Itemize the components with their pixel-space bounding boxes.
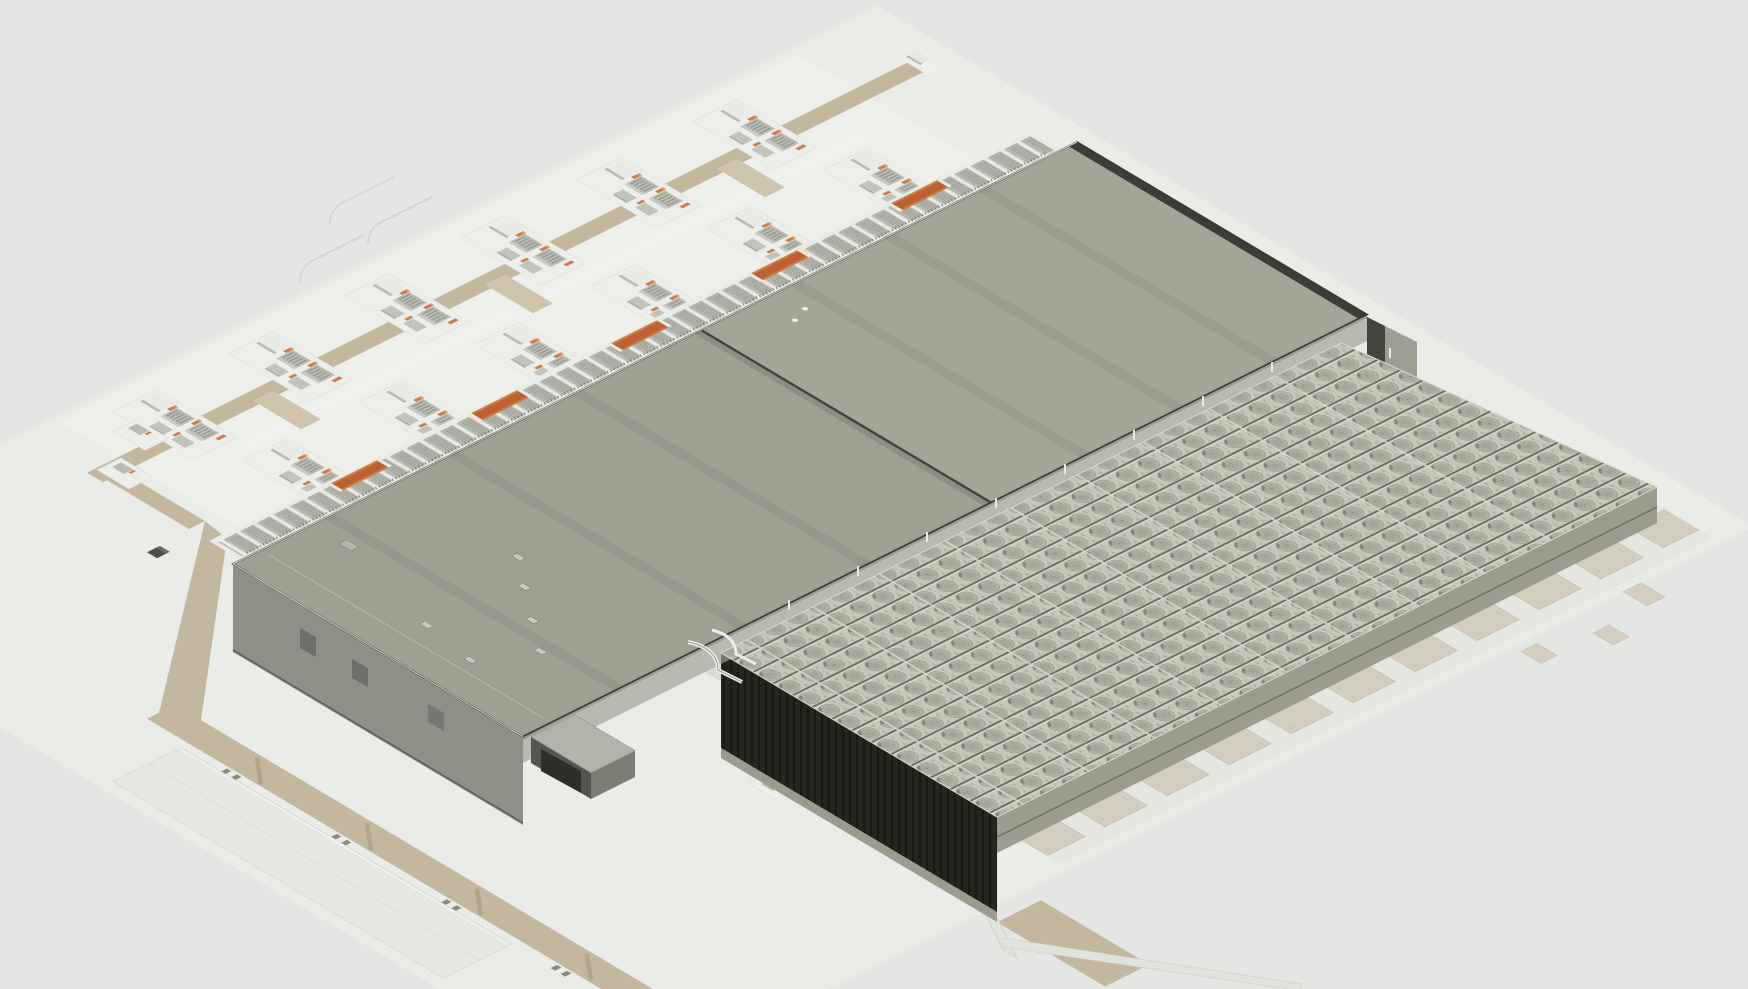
3d-model-viewport[interactable]: [0, 0, 1748, 989]
site-render-svg: [0, 0, 1748, 989]
